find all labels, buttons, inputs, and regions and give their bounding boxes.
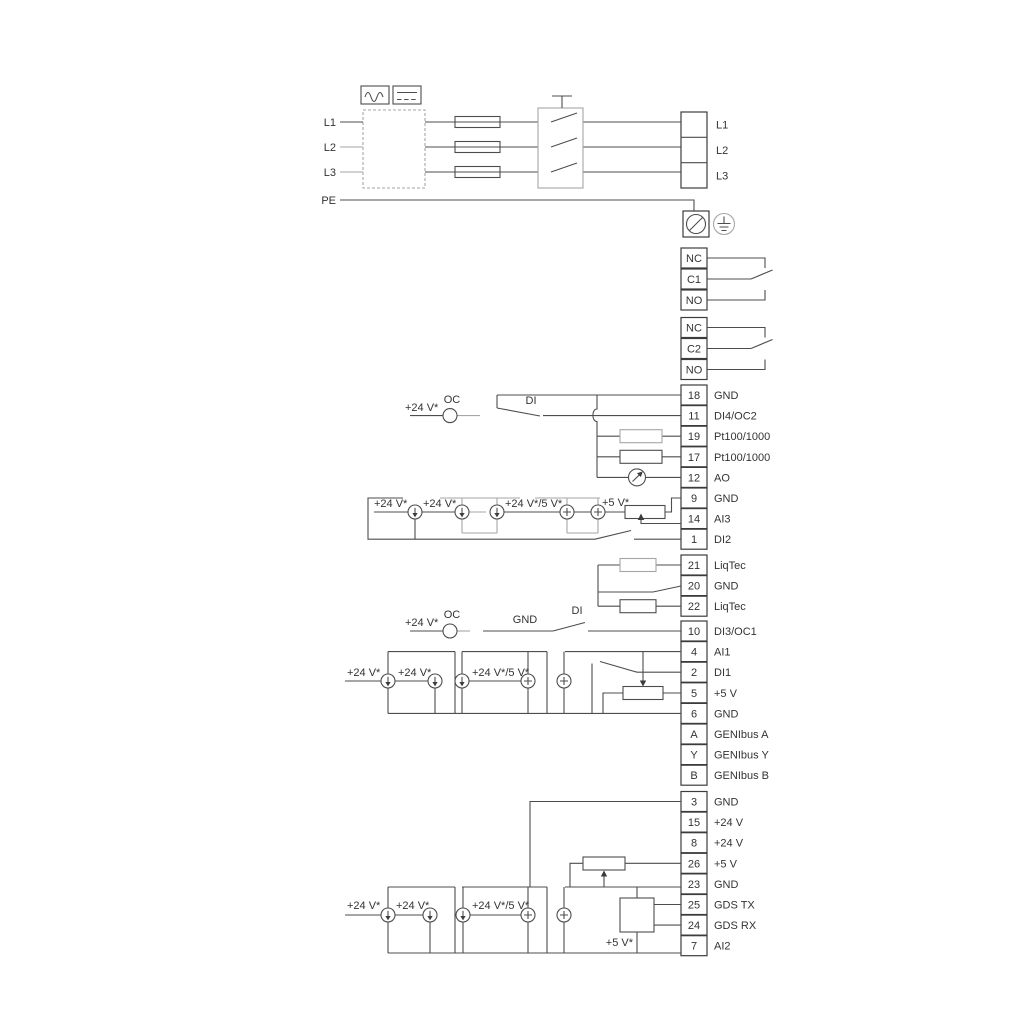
- t19-num: 19: [688, 431, 700, 443]
- label-24v-a: +24 V*: [405, 402, 439, 414]
- liqtec-sensor-1: [620, 559, 656, 572]
- relay1-block: NC C1 NO: [681, 248, 773, 310]
- mains-terminal-block: L1 L2 L3: [681, 112, 728, 188]
- relay1-contact-blade: [751, 270, 773, 279]
- t26-num: 26: [688, 858, 700, 870]
- t10-label: DI3/OC1: [714, 626, 757, 638]
- label-24v5v-b: +24 V*/5 V*: [505, 498, 563, 510]
- oc1-circle: [443, 624, 457, 638]
- t20-label: GND: [714, 581, 739, 593]
- t3-num: 3: [691, 797, 697, 809]
- io-a-wiring: +24 V* OC DI: [405, 394, 681, 486]
- input-label-pe: PE: [321, 195, 336, 207]
- t20-num: 20: [688, 581, 700, 593]
- label-24v-b1: +24 V*: [374, 498, 408, 510]
- t8-label: +24 V: [714, 838, 744, 850]
- output-label-l1: L1: [716, 120, 728, 132]
- relay1-no: NO: [686, 295, 703, 307]
- pt100-resistor-2: [620, 450, 662, 463]
- relay1-wires: [707, 258, 765, 300]
- relay2-no: NO: [686, 365, 703, 377]
- t15-num: 15: [688, 817, 700, 829]
- t23-label: GND: [714, 879, 739, 891]
- label-di-a: DI: [526, 395, 537, 407]
- source-ai2-1: [381, 908, 395, 922]
- label-24v-d1: +24 V*: [347, 900, 381, 912]
- label-24v-c1: +24 V*: [347, 667, 381, 679]
- relay2-block: NC C2 NO: [681, 318, 773, 380]
- disconnect-switch: [538, 96, 583, 188]
- t19-label: Pt100/1000: [714, 431, 770, 443]
- relay2-c2: C2: [687, 344, 701, 356]
- t17-label: Pt100/1000: [714, 452, 770, 464]
- t2-label: DI1: [714, 667, 731, 679]
- t8-num: 8: [691, 838, 697, 850]
- input-label-l2: L2: [324, 142, 336, 154]
- t1-num: 1: [691, 534, 697, 546]
- t18-num: 18: [688, 390, 700, 402]
- label-24v5v-d: +24 V*/5 V*: [472, 900, 530, 912]
- source-ai2-4: [521, 908, 535, 922]
- t4-num: 4: [691, 647, 697, 659]
- wire-pe: [340, 200, 694, 211]
- wire-phases-out: [577, 122, 681, 172]
- t21-num: 21: [688, 560, 700, 572]
- ai3-potentiometer: [625, 506, 665, 519]
- t7-label: AI2: [714, 941, 731, 953]
- t12-num: 12: [688, 472, 700, 484]
- liqtec-wiring: [598, 559, 681, 613]
- t1-label: DI2: [714, 534, 731, 546]
- oc2-circle: [443, 409, 457, 423]
- t23-num: 23: [688, 879, 700, 891]
- t10-num: 10: [688, 626, 700, 638]
- source-ai1-1: [381, 674, 395, 688]
- tB-num: B: [690, 770, 697, 782]
- tA-label: GENIbus A: [714, 729, 769, 741]
- label-24v5v-c: +24 V*/5 V*: [472, 667, 530, 679]
- t5-label: +5 V: [714, 688, 738, 700]
- label-gnd-di3: GND: [513, 614, 538, 626]
- source-ai3-4: [560, 505, 574, 519]
- dc-symbol-box: [393, 86, 421, 104]
- t2-num: 2: [691, 667, 697, 679]
- t22-num: 22: [688, 601, 700, 613]
- t6-num: 6: [691, 708, 697, 720]
- t25-label: GDS TX: [714, 900, 755, 912]
- t26-label: +5 V: [714, 858, 738, 870]
- t4-label: AI1: [714, 647, 731, 659]
- earth-symbol: [714, 214, 735, 235]
- label-oc-a: OC: [444, 394, 461, 406]
- ai3-di2-section: +24 V* +24 V* +24 V*/5 V* +5 V*: [368, 497, 681, 539]
- t6-label: GND: [714, 708, 739, 720]
- ai1-wiper-arrow: [640, 681, 646, 687]
- t21-label: LiqTec: [714, 560, 746, 572]
- t24-num: 24: [688, 920, 700, 932]
- source-ai3-2: [455, 505, 469, 519]
- di3-switch-blade: [553, 623, 585, 632]
- switch-handle-icon: [552, 96, 572, 108]
- relay1-nc: NC: [686, 253, 702, 265]
- source-ai2-2: [423, 908, 437, 922]
- pe-terminal: [683, 211, 709, 237]
- source-ai3-3: [490, 505, 504, 519]
- di2-switch-blade: [595, 531, 631, 540]
- relay2-nc: NC: [686, 323, 702, 335]
- label-24v-c2: +24 V*: [398, 667, 432, 679]
- source-ai1-4: [521, 674, 535, 688]
- label-oc-di3: OC: [444, 609, 461, 621]
- t9-num: 9: [691, 493, 697, 505]
- source-ai3-5: [591, 505, 605, 519]
- power-section: L1 L2 L3 PE: [321, 86, 734, 237]
- wire-phases-mid: [425, 122, 551, 172]
- ai2-gds-section: +24 V* +24 V* +24 V*/5 V* +5 V*: [345, 802, 681, 954]
- source-ai1-5: [557, 674, 571, 688]
- pt100-resistor-1: [620, 430, 662, 443]
- tY-num: Y: [690, 750, 698, 762]
- io-block-b: 21LiqTec 20GND 22LiqTec: [681, 555, 746, 616]
- t7-num: 7: [691, 941, 697, 953]
- ai2-brackets: [388, 887, 564, 953]
- gds-sensor-box: [620, 898, 654, 932]
- ai2-potentiometer: [583, 857, 625, 870]
- ai1-potentiometer: [623, 687, 663, 700]
- wiring-diagram: L1 L2 L3 PE: [0, 0, 1024, 1024]
- source-ai1-2: [428, 674, 442, 688]
- t12-label: AO: [714, 472, 730, 484]
- t9-label: GND: [714, 493, 739, 505]
- di4-switch-blade: [497, 408, 540, 416]
- label-di-di3: DI: [572, 605, 583, 617]
- t11-num: 11: [688, 411, 699, 423]
- label-24v-b2: +24 V*: [423, 498, 457, 510]
- tB-label: GENIbus B: [714, 770, 769, 782]
- t14-num: 14: [688, 514, 700, 526]
- io-block-a: 18GND 11DI4/OC2 19Pt100/1000 17Pt100/100…: [681, 385, 770, 549]
- t18-label: GND: [714, 390, 739, 402]
- tY-label: GENIbus Y: [714, 750, 769, 762]
- ac-symbol-box: [361, 86, 389, 104]
- t17-num: 17: [688, 452, 700, 464]
- ai2-wiper-arrow: [601, 871, 607, 877]
- t25-num: 25: [688, 900, 700, 912]
- t11-label: DI4/OC2: [714, 411, 757, 423]
- ai1-di1-section: +24 V* +24 V* +24 V*/5 V*: [345, 652, 681, 714]
- t3-label: GND: [714, 797, 739, 809]
- t5-num: 5: [691, 688, 697, 700]
- input-label-l3: L3: [324, 167, 336, 179]
- label-24v-di3: +24 V*: [405, 617, 439, 629]
- output-label-l2: L2: [716, 145, 728, 157]
- label-5v-d: +5 V*: [606, 937, 634, 949]
- io-block-c: 10DI3/OC1 4AI1 2DI1 5+5 V 6GND AGENIbus …: [681, 621, 769, 785]
- source-ai3-1: [408, 505, 422, 519]
- t22-label: LiqTec: [714, 601, 746, 613]
- filter-box: [363, 110, 425, 188]
- source-ai1-3: [455, 674, 469, 688]
- t14-label: AI3: [714, 514, 731, 526]
- source-ai2-5: [557, 908, 571, 922]
- t24-label: GDS RX: [714, 920, 757, 932]
- tA-num: A: [690, 729, 698, 741]
- ao-meter-icon: [629, 469, 646, 486]
- sensor-bus-vertical: [593, 395, 597, 477]
- t15-label: +24 V: [714, 817, 744, 829]
- relay1-c1: C1: [687, 274, 701, 286]
- di1-switch-blade: [600, 662, 637, 673]
- io-block-d: 3GND 15+24 V 8+24 V 26+5 V 23GND 25GDS T…: [681, 792, 757, 956]
- output-label-l3: L3: [716, 170, 728, 182]
- relay2-wires: [707, 328, 765, 370]
- source-ai2-3: [456, 908, 470, 922]
- liqtec-sensor-2: [620, 600, 656, 613]
- relay2-contact-blade: [751, 340, 773, 349]
- input-label-l1: L1: [324, 117, 336, 129]
- ai1-brackets: [388, 652, 564, 714]
